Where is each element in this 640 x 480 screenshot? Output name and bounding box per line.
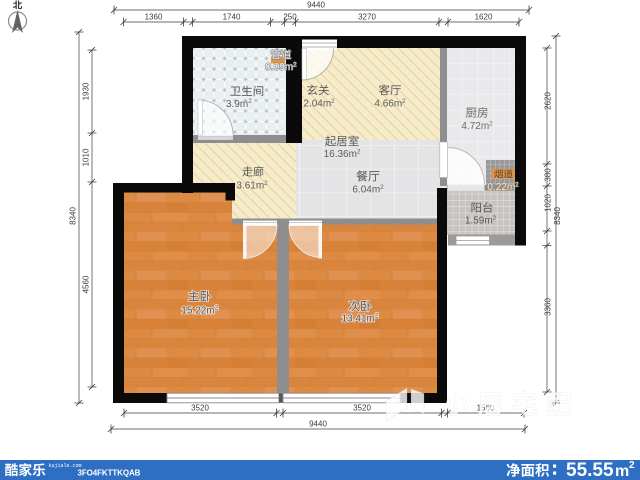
svg-text:4.72m2: 4.72m2 <box>461 120 493 132</box>
svg-text:250: 250 <box>283 13 297 22</box>
svg-text:0.22m2: 0.22m2 <box>487 181 519 193</box>
svg-text:3FO4FKTTKQAB: 3FO4FKTTKQAB <box>78 469 141 478</box>
svg-text:2620: 2620 <box>544 92 553 110</box>
svg-text:9440: 9440 <box>309 420 327 429</box>
svg-text:1930: 1930 <box>82 82 91 100</box>
svg-text:1020: 1020 <box>544 194 553 212</box>
svg-text:4.66m2: 4.66m2 <box>374 98 406 110</box>
svg-text:0.09m2: 0.09m2 <box>265 61 297 73</box>
svg-text:6.04m2: 6.04m2 <box>352 184 384 196</box>
svg-text:15.22m2: 15.22m2 <box>181 305 218 317</box>
svg-text:4560: 4560 <box>82 275 91 293</box>
svg-text:55.55: 55.55 <box>566 460 614 480</box>
svg-text:2.04m2: 2.04m2 <box>303 98 335 110</box>
svg-text:380: 380 <box>544 168 553 182</box>
svg-text:1620: 1620 <box>475 13 493 22</box>
svg-text:3270: 3270 <box>358 13 376 22</box>
svg-text:1360: 1360 <box>145 13 163 22</box>
svg-text:3520: 3520 <box>191 404 209 413</box>
svg-text:13.41m2: 13.41m2 <box>342 313 379 325</box>
svg-text:1.59m2: 1.59m2 <box>465 215 497 227</box>
svg-text:m: m <box>615 463 629 480</box>
svg-text:2: 2 <box>629 460 635 471</box>
svg-text:1740: 1740 <box>223 13 241 22</box>
svg-text:3.61m2: 3.61m2 <box>236 180 268 192</box>
svg-text:3520: 3520 <box>353 404 371 413</box>
svg-text:8340: 8340 <box>69 207 78 225</box>
svg-text:8340: 8340 <box>553 207 562 225</box>
svg-text:1010: 1010 <box>82 148 91 166</box>
svg-text:9440: 9440 <box>307 1 325 10</box>
svg-text:16.36m2: 16.36m2 <box>324 148 361 160</box>
svg-text:3360: 3360 <box>544 298 553 316</box>
